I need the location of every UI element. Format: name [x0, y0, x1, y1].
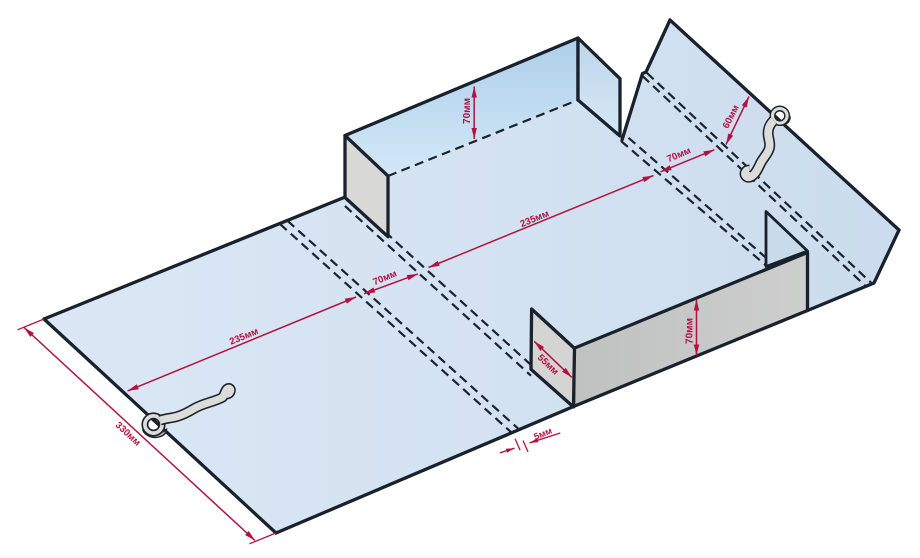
- svg-text:70мм: 70мм: [685, 318, 696, 344]
- svg-text:330мм: 330мм: [113, 420, 143, 449]
- svg-text:5мм: 5мм: [532, 426, 553, 442]
- svg-text:70мм: 70мм: [462, 98, 473, 124]
